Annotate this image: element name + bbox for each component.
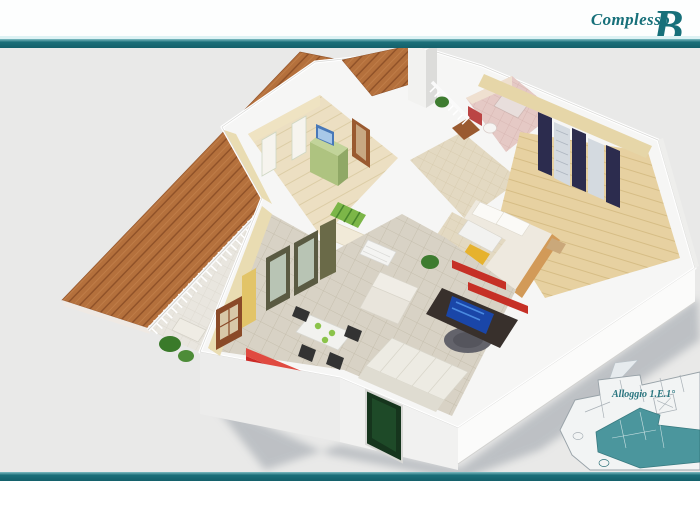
bottom-teal-bar — [0, 472, 700, 481]
balcony-plant-icon — [159, 336, 181, 352]
navy-curtain — [606, 145, 620, 208]
toilet — [484, 123, 497, 133]
bedroom-1-curtain — [292, 116, 306, 160]
olive-curtain — [320, 218, 336, 280]
plant-icon — [421, 255, 439, 269]
header-strip: Complesso B — [0, 0, 700, 36]
top-teal-bar — [0, 39, 700, 48]
bedroom-1-curtain — [262, 132, 276, 176]
render-canvas: Alloggio 1.E.1° — [0, 48, 700, 472]
presentation-page: Complesso B — [0, 0, 700, 525]
window-shutters — [554, 122, 570, 186]
footer-strip — [0, 481, 700, 525]
navy-curtain — [538, 112, 552, 176]
complex-brand: Complesso B — [591, 10, 670, 30]
pilaster — [242, 268, 256, 328]
navy-curtain — [572, 128, 586, 192]
unit-label: Alloggio 1.E.1° — [612, 389, 700, 400]
plant-icon — [435, 97, 449, 108]
floorplan-3d-render — [0, 48, 700, 472]
window-shutters — [588, 138, 604, 200]
